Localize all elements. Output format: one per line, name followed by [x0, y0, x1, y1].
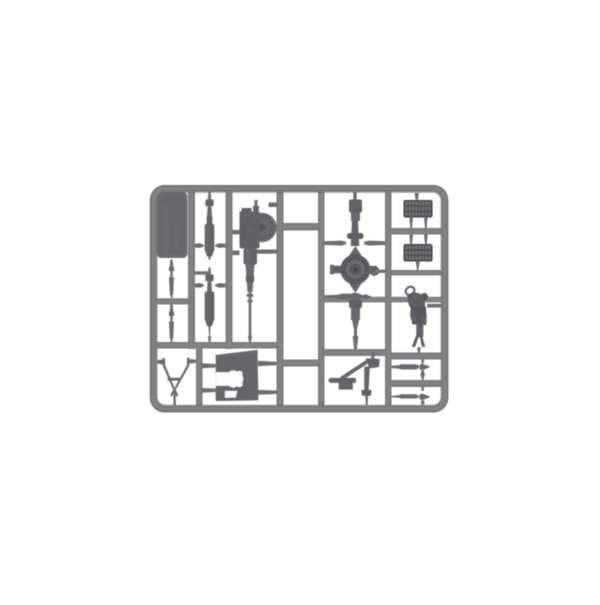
svg-text:Battlefront 2010: Battlefront 2010 [162, 205, 171, 254]
svg-text:GBX28 ZIS: GBX28 ZIS [175, 226, 181, 251]
